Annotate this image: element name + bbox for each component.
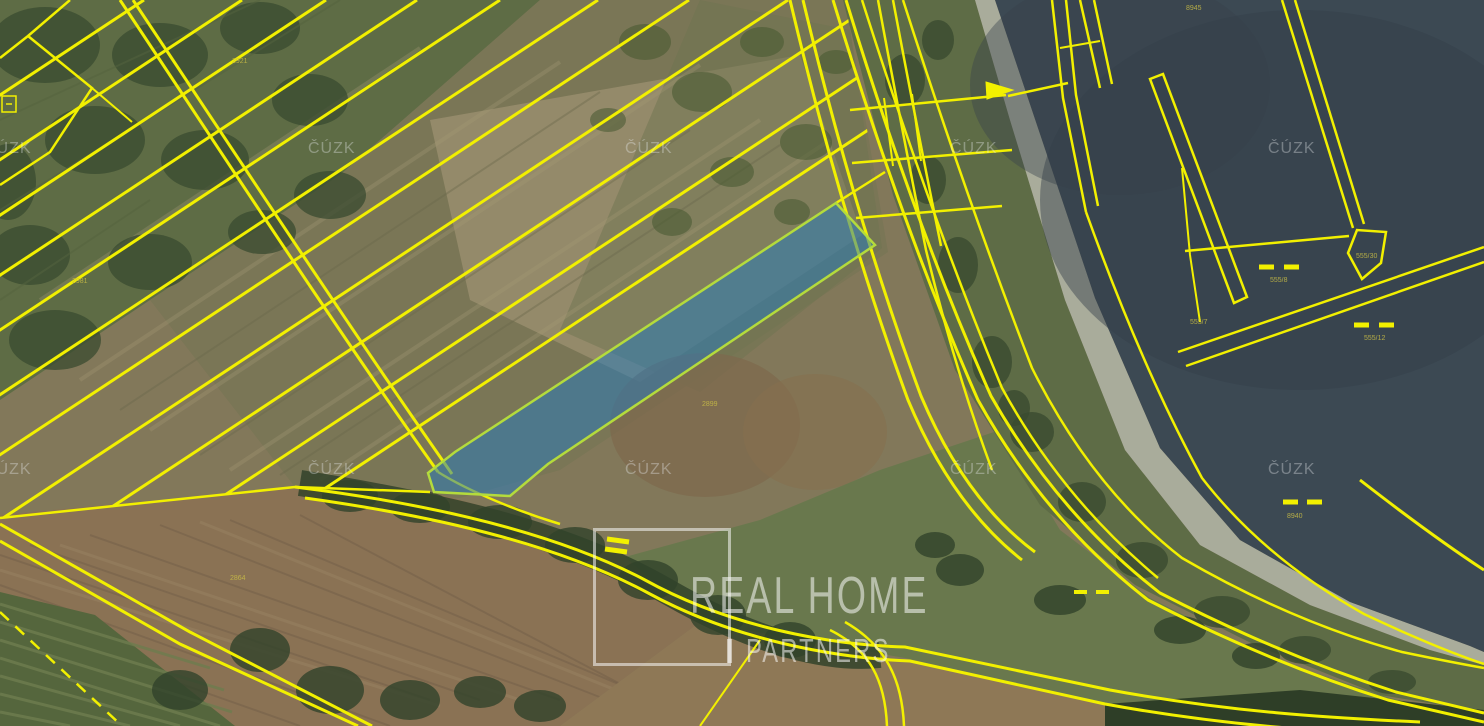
parcel-number-label: 8945 [1186,5,1202,12]
parcel-number-label: 555/7 [1190,319,1208,326]
aerial-cadastral-map: 292129812899286489458940555/8555/12555/3… [0,0,1484,726]
cuzk-watermark: ČÚZK [1268,140,1316,158]
map-canvas: 292129812899286489458940555/8555/12555/3… [0,0,1484,726]
cuzk-watermark: ČÚZK [308,140,356,158]
cuzk-watermark: ČÚZK [0,461,32,479]
parcel-number-label: 555/12 [1364,335,1386,342]
parcel-number-label: 555/8 [1270,277,1288,284]
cuzk-watermark: ČÚZK [625,140,673,158]
cuzk-watermark: ČÚZK [625,461,673,479]
parcel-number-label: 2864 [230,575,246,582]
cuzk-watermark: ČÚZK [1268,461,1316,479]
parcel-number-label: 555/30 [1356,253,1378,260]
parcel-number-label: 8940 [1287,513,1303,520]
parcel-number-label: 2921 [232,58,248,65]
parcel-number-label: 2981 [72,278,88,285]
terrain-layer [0,0,1484,726]
cuzk-watermark: ČÚZK [950,140,998,158]
cuzk-watermark: ČÚZK [0,140,32,158]
cuzk-watermark: ČÚZK [950,461,998,479]
cuzk-watermark: ČÚZK [308,461,356,479]
parcel-number-label: 2899 [702,401,718,408]
